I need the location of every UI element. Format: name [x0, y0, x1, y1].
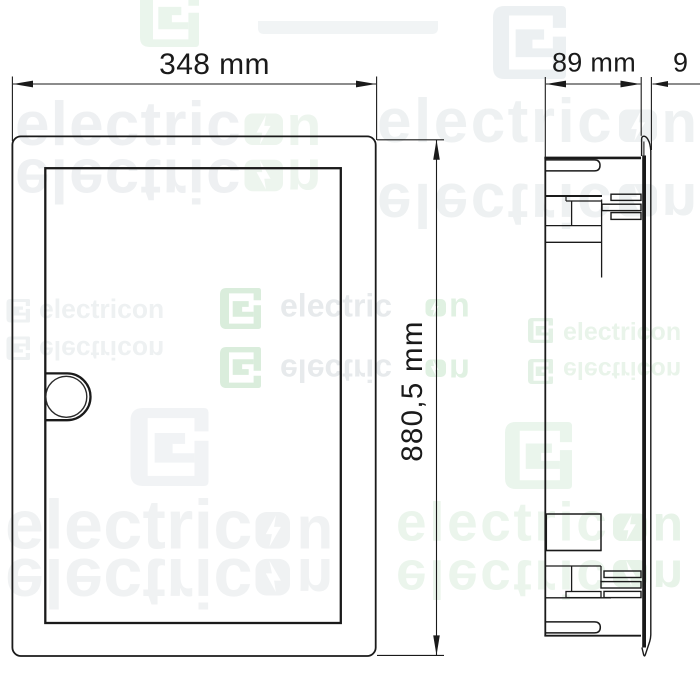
svg-text:electric: electric	[15, 146, 242, 215]
svg-text:electric: electric	[377, 170, 614, 239]
svg-text:348 mm: 348 mm	[159, 48, 270, 81]
svg-text:electric: electric	[396, 491, 609, 553]
svg-text:electric: electric	[377, 87, 614, 156]
svg-text:n: n	[449, 287, 470, 325]
svg-text:electricon: electricon	[39, 294, 164, 324]
svg-text:9: 9	[673, 48, 688, 78]
svg-text:n: n	[653, 496, 684, 552]
svg-text:n: n	[653, 550, 684, 606]
svg-text:n: n	[449, 352, 470, 390]
svg-text:electric: electric	[396, 549, 609, 611]
svg-text:n: n	[662, 90, 697, 155]
svg-text:n: n	[297, 546, 334, 613]
svg-text:electricon: electricon	[563, 318, 681, 346]
svg-text:89 mm: 89 mm	[552, 48, 636, 78]
svg-text:n: n	[287, 147, 322, 211]
svg-text:n: n	[662, 171, 697, 236]
svg-text:electricon: electricon	[563, 356, 681, 384]
svg-text:electricon: electricon	[39, 335, 164, 365]
svg-text:880,5 mm: 880,5 mm	[396, 320, 429, 462]
svg-text:electric: electric	[5, 544, 253, 622]
